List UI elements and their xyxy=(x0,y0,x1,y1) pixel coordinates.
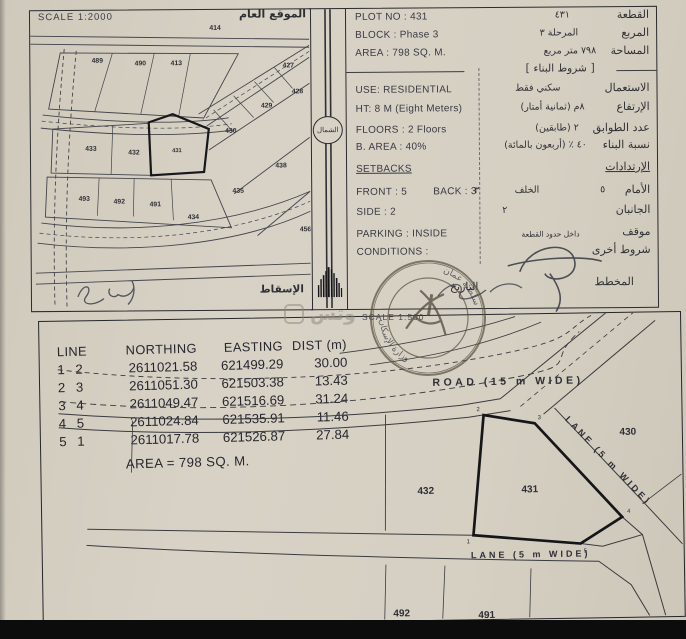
vertex-label-4: 4 xyxy=(627,509,631,515)
watermark-logo-icon xyxy=(284,304,304,324)
built-area-ar-value: ٤٠ ٪ (أربعون بالمائة) xyxy=(504,139,587,151)
area-en: AREA : 798 SQ. M. xyxy=(355,47,446,59)
height-en: HT: 8 M (Eight Meters) xyxy=(356,103,463,115)
lane-diagonal-label: LANE (5 m WIDE) xyxy=(563,414,653,507)
plot-label-434: 434 xyxy=(188,214,200,221)
building-conditions-title: شروط البناء xyxy=(533,62,586,74)
north-road-line xyxy=(330,9,332,308)
site-plan-drawing: 414 489 490 413 427 428 429 430 431 433 … xyxy=(30,9,311,310)
barcode xyxy=(318,267,342,297)
plot-label-433: 433 xyxy=(85,146,97,153)
height-ar-label: الإرتفاع xyxy=(616,100,649,113)
front-back-row: FRONT : 5 BACK : 3 ٣ الخلف ٥ الأمام xyxy=(347,185,657,203)
plot-label-438: 438 xyxy=(275,162,287,169)
back-ar-value: ٣ xyxy=(474,185,479,196)
road-line xyxy=(30,42,309,49)
plot-label-456: 456 xyxy=(300,226,311,233)
building-conditions-header: [ شروط البناء ] xyxy=(346,63,656,79)
plot-label-435: 435 xyxy=(233,188,245,195)
setbacks-en: SETBACKS xyxy=(356,164,412,175)
divider-line xyxy=(616,70,656,71)
subject-plot-431-outline xyxy=(472,413,623,545)
north-strip: الشمال xyxy=(309,8,349,310)
site-plan-panel: SCALE 1:2000 الموقع العام الإسقاط xyxy=(29,8,313,312)
side-ar-label: الجانبان xyxy=(616,203,651,216)
plot-no-ar-label: القطعة xyxy=(617,8,649,21)
scanned-krooki-document: SCALE 1:2000 الموقع العام الإسقاط xyxy=(0,0,686,639)
stamp-text-top: سلطنة عمان xyxy=(438,264,487,307)
use-ar-value: سكني فقط xyxy=(515,82,560,93)
scan-black-bar xyxy=(0,620,686,639)
use-en: USE: RESIDENTIAL xyxy=(355,84,452,96)
plot-label-430: 430 xyxy=(225,128,237,135)
plot-label-429: 429 xyxy=(261,102,273,109)
divider-line xyxy=(346,71,464,73)
use-row: USE: RESIDENTIAL سكني فقط الاستعمال xyxy=(346,83,656,101)
back-en: BACK : 3 xyxy=(433,186,477,197)
plot-no-ar-value: ٤٣١ xyxy=(555,9,570,20)
detail-plot-label-432: 432 xyxy=(417,486,434,497)
plot-label-493: 493 xyxy=(79,196,91,203)
floors-ar-label: عدد الطوابق xyxy=(593,121,650,134)
plot-label-490: 490 xyxy=(135,60,147,67)
top-section: SCALE 1:2000 الموقع العام الإسقاط xyxy=(29,6,659,312)
built-area-ar-label: نسبة البناء xyxy=(603,138,650,151)
plot-label-413: 413 xyxy=(171,60,183,67)
parking-ar-label: موقف xyxy=(622,225,650,238)
front-ar-label: الأمام xyxy=(625,183,650,196)
front-en: FRONT : 5 xyxy=(356,187,407,198)
detail-plot-label-430: 430 xyxy=(619,427,636,438)
built-area-row: B. AREA : 40% ٤٠ ٪ (أربعون بالمائة) نسبة… xyxy=(347,140,657,158)
plot-label-491: 491 xyxy=(150,201,162,208)
floors-ar-value: ٢ (طابقين) xyxy=(535,122,579,133)
back-ar-label: الخلف xyxy=(515,185,540,196)
setbacks-ar-label: الإرتدادات xyxy=(605,160,650,173)
north-label: الشمال xyxy=(317,126,339,134)
setbacks-row: SETBACKS الإرتدادات xyxy=(347,162,657,180)
front-ar-value: ٥ xyxy=(600,184,605,195)
block-ar-label: المربع xyxy=(621,26,649,39)
detail-plot-label-431: 431 xyxy=(521,484,538,495)
side-en: SIDE : 2 xyxy=(356,207,396,218)
plot-no-row: PLOT NO : 431 ٤٣١ القطعة xyxy=(346,10,656,28)
plot-label-427: 427 xyxy=(283,62,295,69)
emblem-icon xyxy=(406,289,452,335)
watermark-text: وتس xyxy=(310,303,356,325)
plot-label-489: 489 xyxy=(92,58,104,65)
plot-no-en: PLOT NO : 431 xyxy=(355,11,428,23)
height-ar-value: ٨م (ثمانية أمتار) xyxy=(520,101,584,112)
block-en: BLOCK : Phase 3 xyxy=(355,29,439,41)
vertex-label-2: 2 xyxy=(476,407,480,413)
subject-plot-431-outline xyxy=(149,114,209,175)
plot-label-492: 492 xyxy=(114,199,126,206)
floors-en: FLOORS : 2 Floors xyxy=(356,124,447,136)
vertex-label-1: 1 xyxy=(467,539,471,545)
north-indicator: الشمال xyxy=(313,116,343,144)
lane-bottom-label: LANE (5 m WIDE) xyxy=(471,548,591,560)
side-ar-value: ٢ xyxy=(502,205,507,216)
area-ar-label: المساحة xyxy=(611,44,650,57)
plot-label-414: 414 xyxy=(209,25,221,32)
road-line xyxy=(30,34,309,41)
height-row: HT: 8 M (Eight Meters) ٨م (ثمانية أمتار)… xyxy=(347,102,657,120)
plot-label-432: 432 xyxy=(128,149,140,156)
block-ar-value: المرحلة ٣ xyxy=(540,27,579,38)
area-row: AREA : 798 SQ. M. ٧٩٨ متر مربع المساحة xyxy=(346,46,656,64)
north-road-line xyxy=(325,9,327,308)
vertex-label-3: 3 xyxy=(538,415,542,421)
parking-en: PARKING : INSIDE xyxy=(356,228,447,240)
watermark: وتس xyxy=(284,303,356,325)
area-ar-value: ٧٩٨ متر مربع xyxy=(544,45,597,56)
use-ar-label: الاستعمال xyxy=(605,81,650,94)
handwritten-signature-site-plan xyxy=(78,280,134,304)
side-row: SIDE : 2 ٢ الجانبان xyxy=(347,205,657,223)
detail-plot-label-492: 492 xyxy=(393,608,410,619)
plot-label-428: 428 xyxy=(292,88,304,95)
plot-label-431: 431 xyxy=(172,148,182,154)
built-area-en: B. AREA : 40% xyxy=(356,141,427,152)
official-stamp: سلطنة عمان وزارة الإسكان xyxy=(357,247,499,389)
